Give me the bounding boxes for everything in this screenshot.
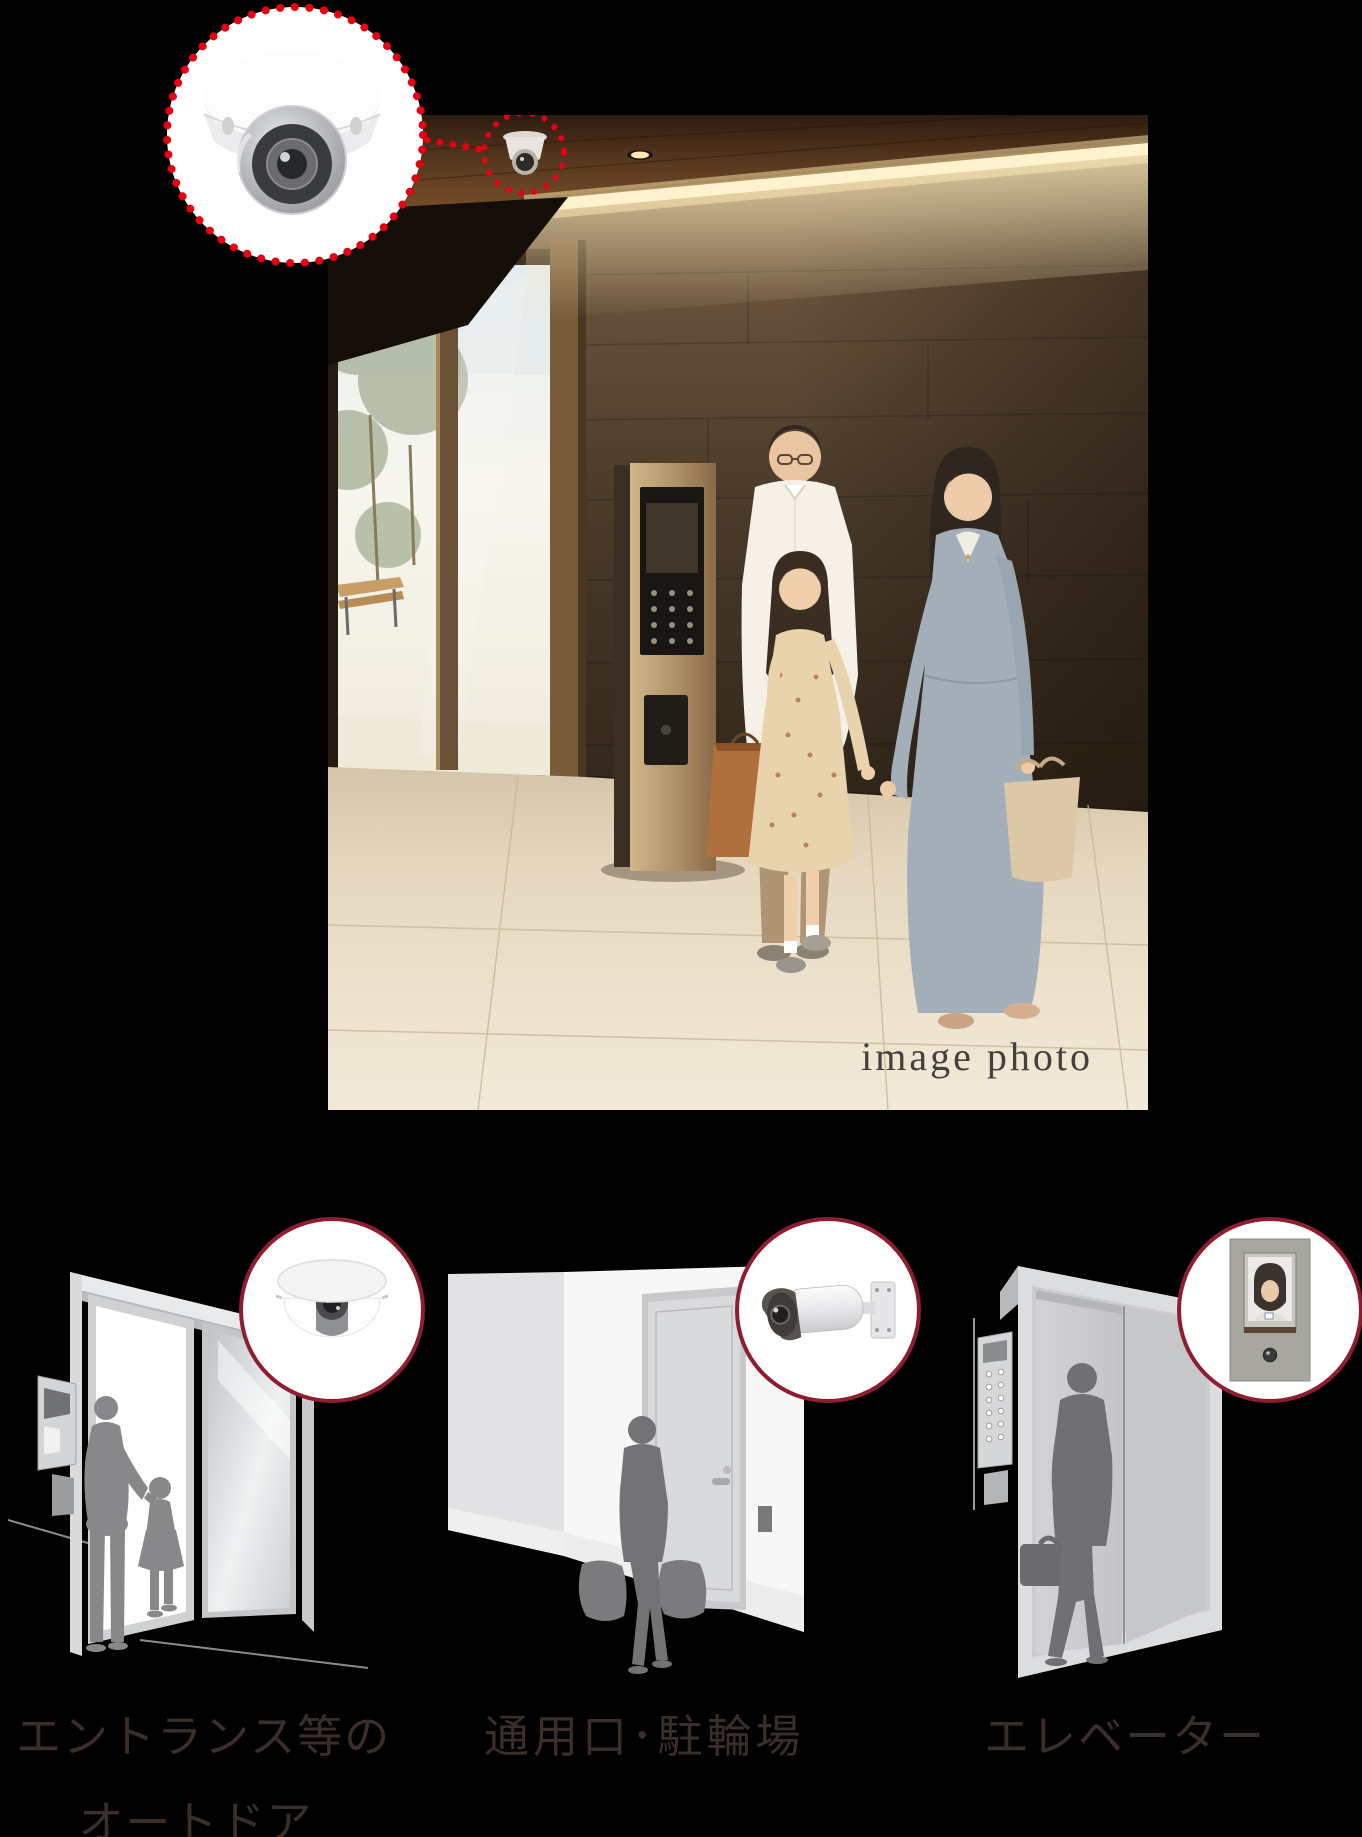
entrance-intercom-panel	[38, 1376, 76, 1516]
dome-security-camera-icon	[180, 38, 410, 233]
label-service-entrance: 通用口･駐輪場	[484, 1700, 805, 1765]
label-entrance-autodoor-line2: オートドア	[16, 1786, 376, 1837]
elevator-call-panel	[978, 1332, 1012, 1505]
dome-camera-icon	[270, 1254, 394, 1366]
callout-connector-line	[427, 140, 484, 150]
label-elevator: エレベーター	[984, 1700, 1266, 1765]
service-camera-callout	[735, 1217, 921, 1403]
label-entrance-autodoor-line1: エントランス等の	[16, 1700, 376, 1765]
entrance-camera-callout	[239, 1217, 425, 1403]
elevator-monitor-camera-icon	[1220, 1235, 1320, 1385]
bullet-camera-icon	[753, 1260, 903, 1360]
elevator-monitor-callout	[1177, 1217, 1362, 1403]
access-reader	[758, 1506, 772, 1532]
image-photo-caption: image photo	[861, 1033, 1093, 1080]
security-camera-feature-graphic: image photo	[0, 0, 1362, 1837]
